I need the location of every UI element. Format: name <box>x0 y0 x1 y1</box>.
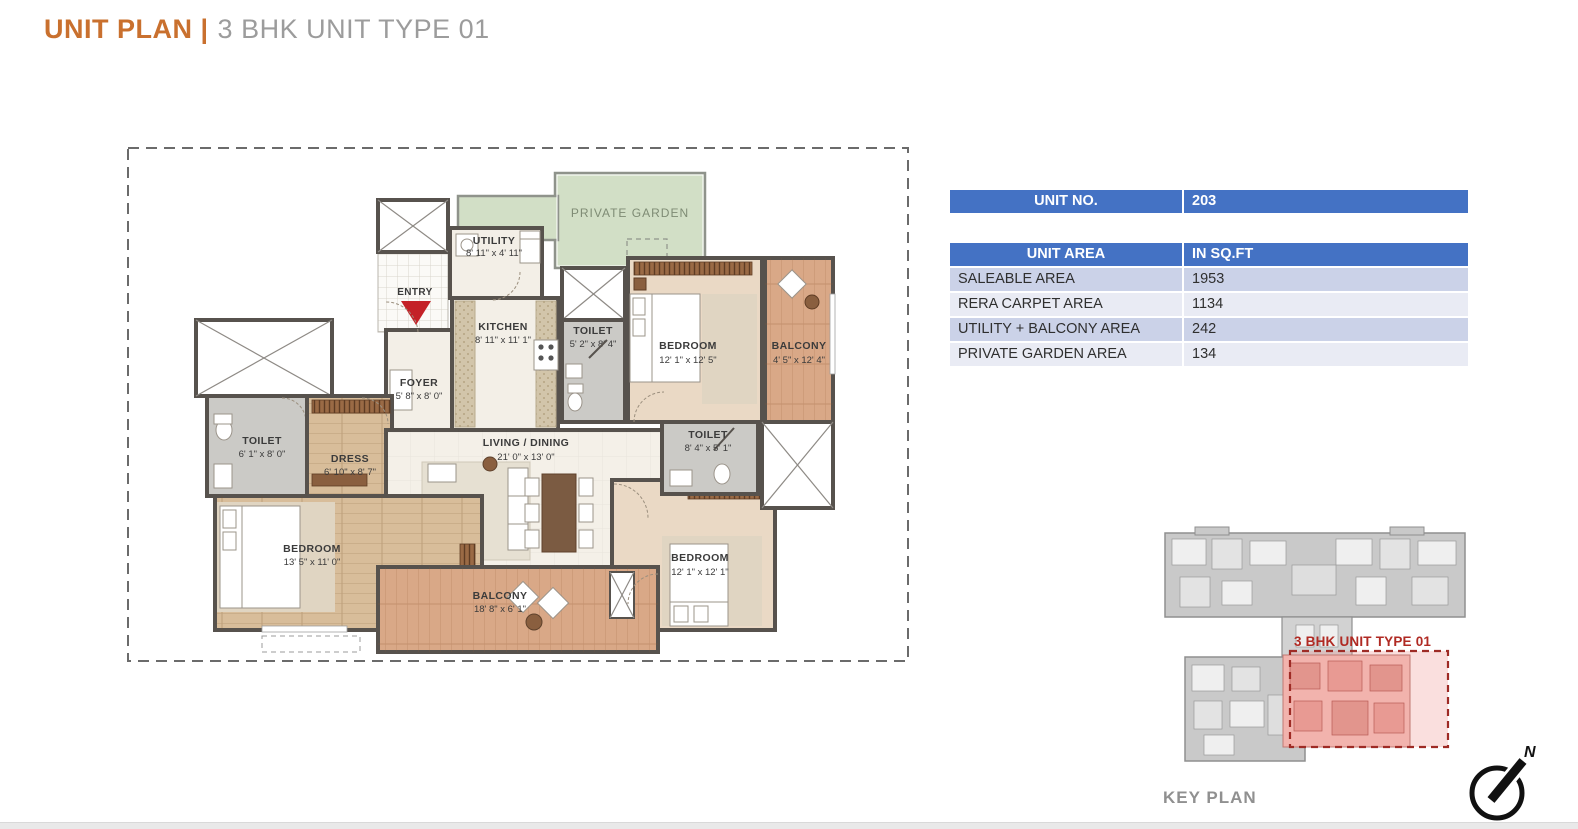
page-title: UNIT PLAN |3 BHK UNIT TYPE 01 <box>44 14 490 45</box>
key-plan-highlighted-unit: 3 BHK UNIT TYPE 01 <box>1283 634 1448 747</box>
north-label: N <box>1524 744 1536 761</box>
room-dims: 8' 4" x 5' 1" <box>685 443 732 454</box>
shaft-right <box>762 422 833 508</box>
shaft <box>562 268 625 320</box>
unit-area-table: UNIT AREA IN SQ.FT SALEABLE AREA 1953 RE… <box>950 243 1468 366</box>
room-label: TOILET <box>242 435 282 447</box>
room-utility: UTILITY 8' 11" x 4' 11" <box>450 228 542 298</box>
row-value: 1953 <box>1184 268 1468 291</box>
room-dims: 8' 11" x 4' 11" <box>466 248 522 259</box>
room-dress: DRESS 6' 10" x 8' 7" <box>307 396 392 500</box>
unit-no-table: UNIT NO. 203 <box>950 190 1468 213</box>
unit-no-header-row: UNIT NO. 203 <box>950 190 1468 213</box>
room-label: BALCONY <box>473 590 528 602</box>
room-dims: 12' 1" x 12' 5" <box>659 355 716 366</box>
room-toilet-right: TOILET 8' 4" x 5' 1" <box>662 422 758 494</box>
unit-no-label: UNIT NO. <box>950 190 1182 213</box>
room-label: FOYER <box>400 377 438 389</box>
room-label: BEDROOM <box>659 340 717 352</box>
unit-area-header-left: UNIT AREA <box>950 243 1182 266</box>
room-label: DRESS <box>331 453 369 465</box>
room-balcony-bottom: BALCONY 18' 8" x 6' 1" <box>378 567 658 652</box>
room-dims: 6' 10" x 8' 7" <box>324 467 376 478</box>
shaft-left <box>196 320 332 396</box>
room-toilet-left: TOILET 6' 1" x 8' 0" <box>207 396 307 496</box>
room-label: BEDROOM <box>671 552 729 564</box>
private-garden-label: PRIVATE GARDEN <box>571 206 689 220</box>
unit-no-value: 203 <box>1184 190 1468 213</box>
table-row: PRIVATE GARDEN AREA 134 <box>950 343 1468 366</box>
room-dims: 4' 5" x 12' 4" <box>773 355 825 366</box>
room-label: BEDROOM <box>283 543 341 555</box>
room-label: UTILITY <box>473 235 515 247</box>
row-label: UTILITY + BALCONY AREA <box>950 318 1182 341</box>
room-dims: 18' 8" x 6' 1" <box>474 604 526 615</box>
key-plan: 3 BHK UNIT TYPE 01 <box>1160 525 1470 775</box>
room-dims: 6' 1" x 8' 0" <box>239 449 286 460</box>
room-label: TOILET <box>688 429 728 441</box>
room-dims: 12' 1" x 12' 1" <box>671 567 728 578</box>
room-label: LIVING / DINING <box>483 437 570 449</box>
row-value: 242 <box>1184 318 1468 341</box>
room-balcony-right: BALCONY 4' 5" x 12' 4" <box>765 258 835 422</box>
room-bedroom-top-right: BEDROOM 12' 1" x 12' 5" <box>628 258 762 422</box>
table-row: UTILITY + BALCONY AREA 242 <box>950 318 1468 341</box>
row-label: RERA CARPET AREA <box>950 293 1182 316</box>
row-value: 1134 <box>1184 293 1468 316</box>
room-label: TOILET <box>573 325 613 337</box>
row-label: SALEABLE AREA <box>950 268 1182 291</box>
page-title-prefix: UNIT PLAN | <box>44 14 209 44</box>
page-title-suffix: 3 BHK UNIT TYPE 01 <box>218 14 490 44</box>
room-dims: 5' 8" x 8' 0" <box>396 391 443 402</box>
key-plan-top-wing <box>1165 527 1465 617</box>
room-dims: 21' 0" x 13' 0" <box>497 452 554 463</box>
wardrobe <box>312 400 390 413</box>
room-dims: 13' 5" x 11' 0" <box>284 557 341 568</box>
room-dims: 8' 11" x 11' 1" <box>475 335 531 346</box>
slide-bottom-strip <box>0 822 1578 829</box>
key-plan-unit-label: 3 BHK UNIT TYPE 01 <box>1294 634 1431 649</box>
key-plan-caption: KEY PLAN <box>1163 788 1257 808</box>
room-dims: 5' 2" x 8' 4" <box>570 339 617 350</box>
row-label: PRIVATE GARDEN AREA <box>950 343 1182 366</box>
unit-area-header-row: UNIT AREA IN SQ.FT <box>950 243 1468 266</box>
row-value: 134 <box>1184 343 1468 366</box>
entry-label: ENTRY <box>397 287 433 298</box>
table-row: RERA CARPET AREA 1134 <box>950 293 1468 316</box>
table-row: SALEABLE AREA 1953 <box>950 268 1468 291</box>
unit-area-header-right: IN SQ.FT <box>1184 243 1468 266</box>
room-label: KITCHEN <box>478 321 527 333</box>
room-label: BALCONY <box>772 340 827 352</box>
entry-lobby: ENTRY <box>378 200 448 332</box>
unit-plan-page: UNIT PLAN |3 BHK UNIT TYPE 01 UNIT NO. 2… <box>0 0 1578 829</box>
wardrobe <box>634 262 752 275</box>
north-compass-icon: N <box>1452 740 1548 826</box>
room-toilet-kitchen: TOILET 5' 2" x 8' 4" <box>562 320 625 422</box>
floor-plan: PRIVATE GARDEN ENTRY UTILITY 8' 11" x 4'… <box>122 144 912 664</box>
